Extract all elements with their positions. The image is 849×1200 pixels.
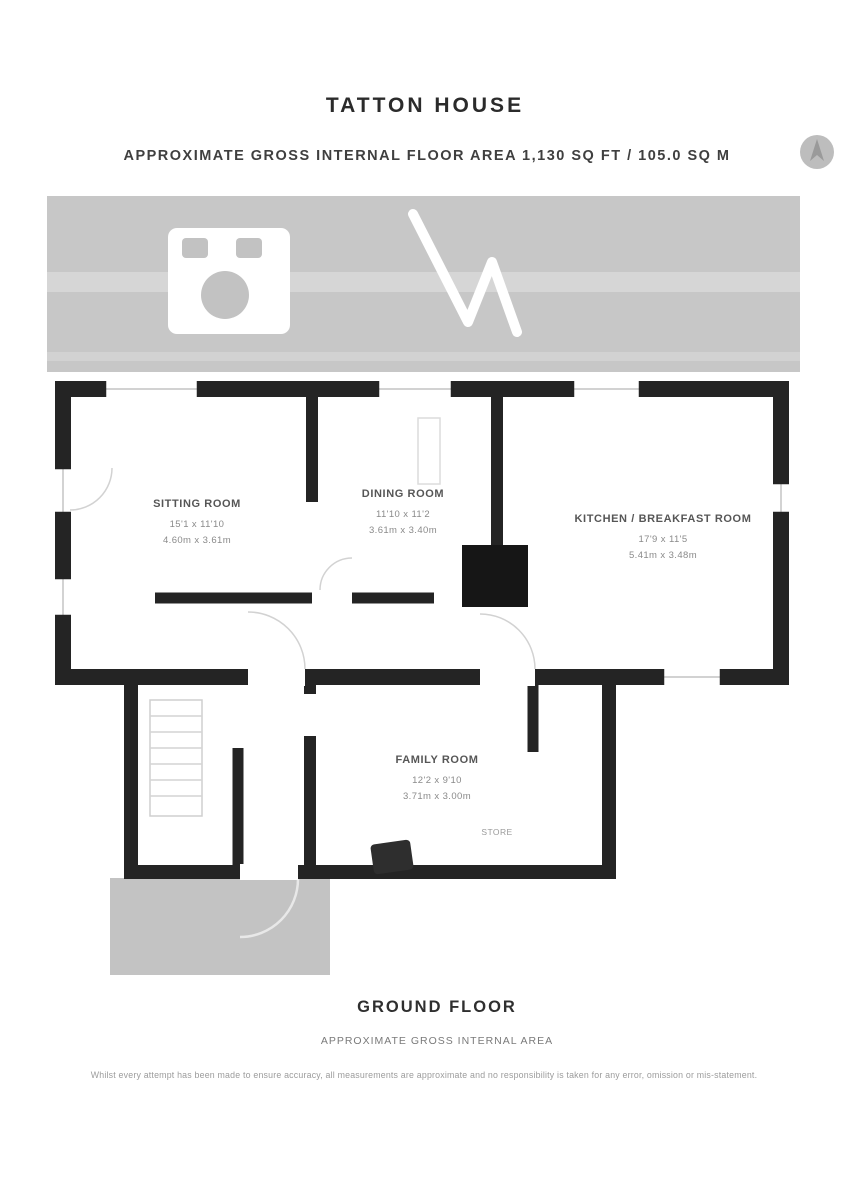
room-label-store: STORE xyxy=(481,827,512,837)
room-name: KITCHEN / BREAKFAST ROOM xyxy=(575,513,752,525)
window xyxy=(772,483,790,513)
window xyxy=(378,380,452,398)
doorway xyxy=(248,668,305,686)
porch-area xyxy=(110,878,330,975)
window xyxy=(54,578,72,616)
room-name: DINING ROOM xyxy=(362,488,444,500)
compass-icon xyxy=(800,135,834,169)
room-dims-m: 3.71m x 3.00m xyxy=(403,791,471,802)
cupboard-icon xyxy=(418,418,440,484)
doorway xyxy=(480,668,535,686)
floorplan-canvas: TATTON HOUSE APPROXIMATE GROSS INTERNAL … xyxy=(0,0,849,1200)
room-dims-ft: 17'9 x 11'5 xyxy=(638,534,687,545)
page-subtitle: APPROXIMATE GROSS INTERNAL FLOOR AREA 1,… xyxy=(123,148,730,164)
room-dims-m: 4.60m x 3.61m xyxy=(163,535,231,546)
room-label-sitting: SITTING ROOM 15'1 x 11'10 4.60m x 3.61m xyxy=(153,498,241,546)
room-label-family: FAMILY ROOM 12'2 x 9'10 3.71m x 3.00m xyxy=(396,754,479,802)
room-name: STORE xyxy=(481,827,512,837)
fireplace xyxy=(462,545,528,607)
page-title: TATTON HOUSE xyxy=(326,94,524,117)
terrace-area xyxy=(47,196,800,372)
stove-icon xyxy=(370,839,414,874)
patio-table-icon xyxy=(168,228,290,334)
room-name: FAMILY ROOM xyxy=(396,754,479,766)
room-dims-ft: 12'2 x 9'10 xyxy=(412,775,462,786)
window xyxy=(54,468,72,513)
terrace-stripe-2 xyxy=(47,352,800,361)
room-label-kitchen: KITCHEN / BREAKFAST ROOM 17'9 x 11'5 5.4… xyxy=(575,513,752,561)
french-door xyxy=(663,668,721,686)
floorplan-page: TATTON HOUSE APPROXIMATE GROSS INTERNAL … xyxy=(0,0,849,1200)
floor-label: GROUND FLOOR xyxy=(357,998,517,1016)
room-dims-m: 3.61m x 3.40m xyxy=(369,525,437,536)
terrace-stripe xyxy=(47,272,800,292)
interior-walls xyxy=(155,397,533,872)
room-name: SITTING ROOM xyxy=(153,498,241,510)
window xyxy=(573,380,640,398)
room-dims-ft: 15'1 x 11'10 xyxy=(170,519,225,530)
stairs-icon xyxy=(150,700,202,816)
doorway xyxy=(240,864,298,880)
room-dims-m: 5.41m x 3.48m xyxy=(629,550,697,561)
room-dims-ft: 11'10 x 11'2 xyxy=(376,509,430,520)
window xyxy=(105,380,198,398)
disclaimer-text: Whilst every attempt has been made to en… xyxy=(91,1070,757,1080)
floor-sublabel: APPROXIMATE GROSS INTERNAL AREA xyxy=(321,1035,553,1047)
room-label-dining: DINING ROOM 11'10 x 11'2 3.61m x 3.40m xyxy=(362,488,444,536)
